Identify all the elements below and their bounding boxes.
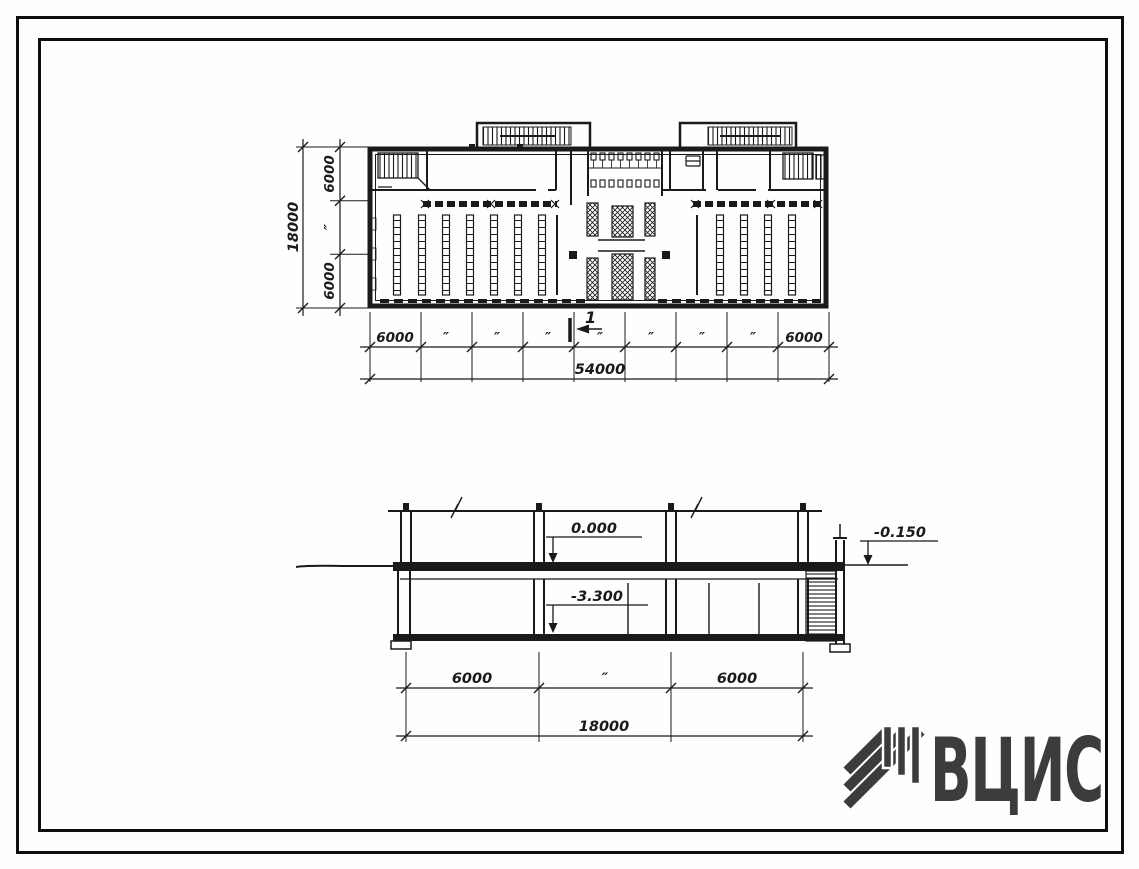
floor-plan	[370, 123, 826, 306]
plan-stair-top-left	[378, 153, 430, 190]
plan-partitions	[372, 147, 826, 205]
section-bay-1: 6000	[452, 671, 492, 687]
section-cut-label: 1	[585, 308, 596, 327]
plan-left-bay-2: ″	[322, 224, 338, 230]
section-total: 18000	[579, 719, 629, 735]
section-bay-2: ″	[602, 671, 609, 687]
drawing-canvas: 6000 ″ 6000 18000 6000 ″ ″ ″ ″ ″ ″ ″ 600…	[0, 0, 1139, 869]
section-basement	[391, 571, 845, 649]
section-drawing: 0.000 -3.300 -0.150	[296, 497, 938, 652]
plan-left-total: 18000	[286, 202, 302, 252]
plan-toilet-block	[588, 153, 662, 187]
plan-left-dimensions: 6000 ″ 6000 18000	[286, 139, 368, 316]
elevation-marks: 0.000 -3.300 -0.150	[546, 521, 938, 633]
section-dimensions: 6000 ″ 6000 18000	[396, 652, 813, 742]
blueprint-page: 6000 ″ 6000 18000 6000 ″ ″ ″ ″ ″ ″ ″ 600…	[0, 0, 1139, 869]
plan-bottom-bay-6: ″	[648, 330, 654, 346]
plan-bottom-bay-4: ″	[545, 330, 551, 346]
plan-core-shafts	[569, 203, 670, 300]
logo-icon	[847, 726, 921, 805]
logo-wordmark: ВЦИС	[930, 720, 1103, 822]
plan-bottom-bay-8: ″	[750, 330, 756, 346]
elevation-floor-label: 0.000	[571, 521, 617, 537]
plan-bottom-bay-3: ″	[494, 330, 500, 346]
elevation-basement-label: -3.300	[571, 589, 623, 605]
plan-bottom-bay-9: 6000	[785, 330, 823, 346]
logo-text: ВЦИС	[930, 720, 1103, 822]
plan-bottom-bay-1: 6000	[376, 330, 414, 346]
plan-stair-top-right	[783, 153, 825, 179]
plan-bottom-dimensions: 6000 ″ ″ ″ ″ ″ ″ ″ 6000 54000	[360, 312, 838, 384]
elevation-grade-label: -0.150	[874, 525, 926, 541]
plan-stair-bulkheads	[477, 123, 796, 149]
section-grade-line-left	[296, 566, 395, 567]
plan-bottom-bay-2: ″	[443, 330, 449, 346]
plan-bottom-total: 54000	[575, 362, 625, 378]
plan-left-bay-1: 6000	[322, 155, 338, 193]
plan-left-bay-3: 6000	[322, 262, 338, 300]
section-floor-slab	[393, 562, 845, 571]
section-right-stair	[806, 524, 908, 652]
logo: ВЦИС	[847, 720, 1103, 822]
plan-bottom-bay-7: ″	[699, 330, 705, 346]
section-bay-3: 6000	[717, 671, 757, 687]
plan-bottom-bay-5: ″	[597, 330, 603, 346]
